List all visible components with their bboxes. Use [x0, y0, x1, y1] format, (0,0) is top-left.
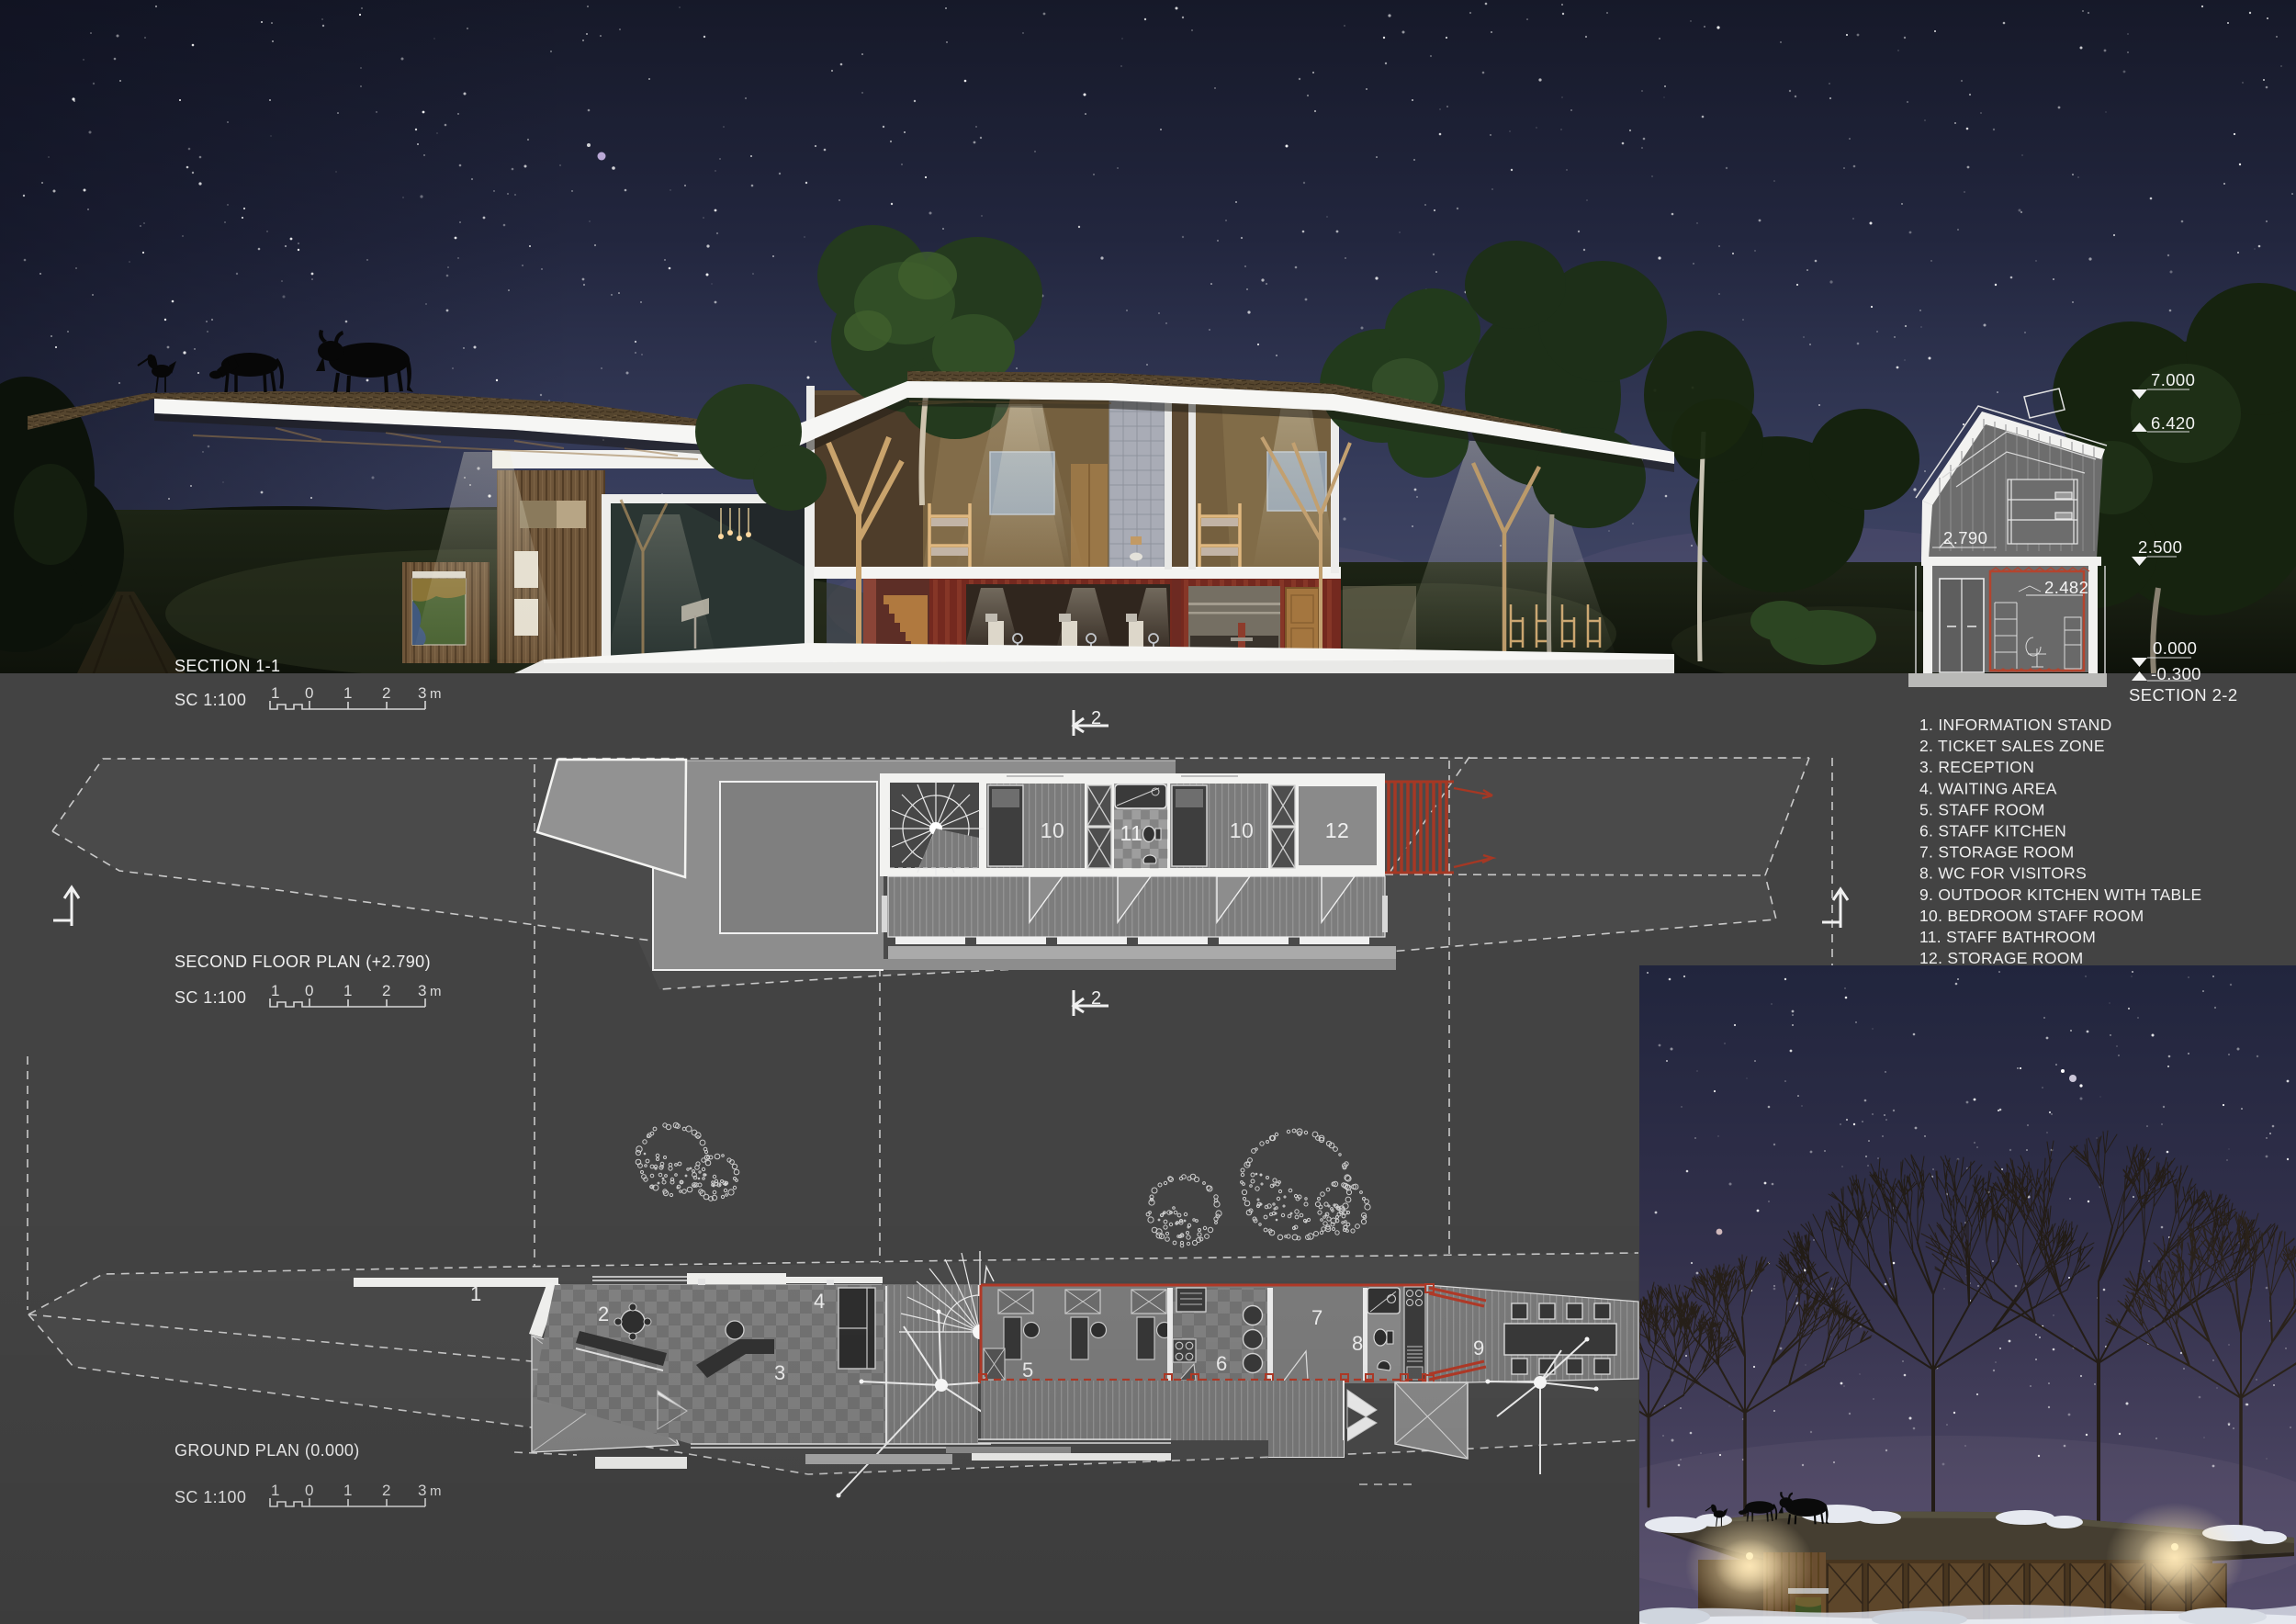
svg-text:2: 2	[1091, 708, 1101, 728]
svg-text:1: 1	[271, 684, 280, 702]
svg-text:7. STORAGE ROOM: 7. STORAGE ROOM	[1919, 843, 2075, 862]
svg-text:0.000: 0.000	[2153, 638, 2197, 658]
svg-text:2.790: 2.790	[1943, 528, 1987, 547]
svg-text:2. TICKET SALES ZONE: 2. TICKET SALES ZONE	[1919, 737, 2105, 755]
svg-text:m: m	[430, 686, 442, 702]
svg-text:10: 10	[1041, 818, 1065, 842]
svg-text:2.500: 2.500	[2138, 537, 2182, 557]
svg-text:SECTION 2-2: SECTION 2-2	[2129, 685, 2238, 705]
svg-text:SC 1:100: SC 1:100	[174, 691, 246, 709]
svg-text:9. OUTDOOR KITCHEN WITH TABLE: 9. OUTDOOR KITCHEN WITH TABLE	[1919, 885, 2202, 904]
svg-text:1: 1	[343, 982, 353, 999]
svg-text:1: 1	[271, 982, 280, 999]
svg-text:6.420: 6.420	[2151, 413, 2195, 433]
svg-text:SC 1:100: SC 1:100	[174, 988, 246, 1007]
svg-text:11: 11	[1120, 821, 1143, 845]
svg-text:10: 10	[1230, 818, 1255, 842]
svg-text:6. STAFF KITCHEN: 6. STAFF KITCHEN	[1919, 822, 2066, 840]
svg-text:3: 3	[418, 684, 427, 702]
svg-text:7.000: 7.000	[2151, 370, 2195, 389]
svg-text:3. RECEPTION: 3. RECEPTION	[1919, 758, 2034, 776]
svg-text:10. BEDROOM STAFF ROOM: 10. BEDROOM STAFF ROOM	[1919, 907, 2144, 925]
svg-text:12. STORAGE ROOM: 12. STORAGE ROOM	[1919, 949, 2084, 967]
svg-text:2.482: 2.482	[2044, 578, 2088, 597]
svg-text:11. STAFF BATHROOM: 11. STAFF BATHROOM	[1919, 928, 2096, 946]
svg-text:2: 2	[382, 684, 391, 702]
svg-text:0: 0	[305, 684, 314, 702]
svg-text:5. STAFF ROOM: 5. STAFF ROOM	[1919, 800, 2045, 818]
svg-text:0: 0	[305, 982, 314, 999]
svg-text:4. WAITING AREA: 4. WAITING AREA	[1919, 779, 2057, 797]
svg-text:m: m	[430, 984, 442, 999]
svg-text:1. INFORMATION STAND: 1. INFORMATION STAND	[1919, 716, 2112, 734]
svg-text:8. WC FOR VISITORS: 8. WC FOR VISITORS	[1919, 864, 2087, 883]
svg-text:SECTION 1-1: SECTION 1-1	[174, 657, 280, 675]
svg-text:1: 1	[343, 684, 353, 702]
svg-text:2: 2	[382, 982, 391, 999]
svg-text:SECOND FLOOR PLAN (+2.790): SECOND FLOOR PLAN (+2.790)	[174, 953, 431, 971]
svg-text:12: 12	[1325, 818, 1350, 842]
svg-text:2: 2	[1091, 988, 1101, 1009]
svg-text:3: 3	[418, 982, 427, 999]
